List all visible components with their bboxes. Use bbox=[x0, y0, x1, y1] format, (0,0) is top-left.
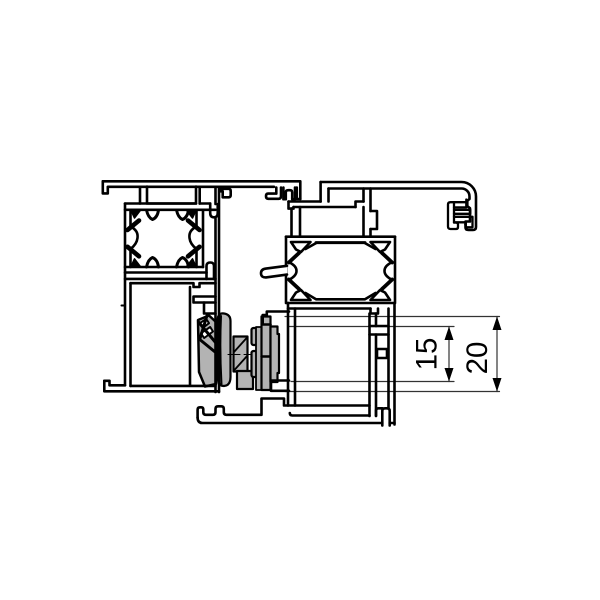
svg-text:20: 20 bbox=[461, 342, 494, 375]
svg-text:15: 15 bbox=[411, 338, 444, 371]
